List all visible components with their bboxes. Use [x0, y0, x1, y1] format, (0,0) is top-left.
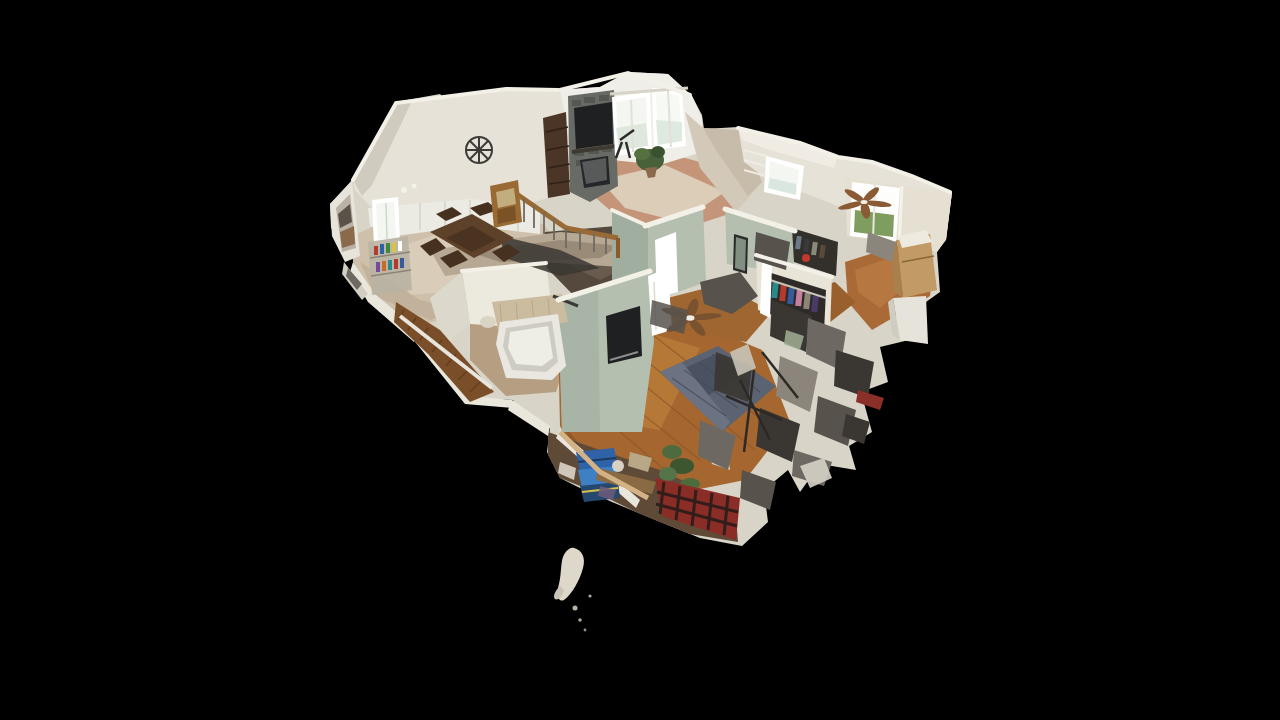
bar-cart — [368, 236, 412, 295]
closet-door-frame — [760, 262, 772, 318]
bathtub — [496, 314, 566, 380]
bath-plant — [480, 316, 496, 328]
front-door — [490, 180, 522, 228]
dollhouse-model[interactable] — [0, 0, 1280, 720]
red-hat — [802, 254, 810, 262]
moving-box — [890, 230, 937, 298]
wheel-decor — [466, 137, 492, 163]
fireplace — [568, 90, 618, 202]
viewer-canvas[interactable] — [0, 0, 1280, 720]
living-tv — [574, 102, 613, 149]
white-bucket — [612, 460, 624, 472]
